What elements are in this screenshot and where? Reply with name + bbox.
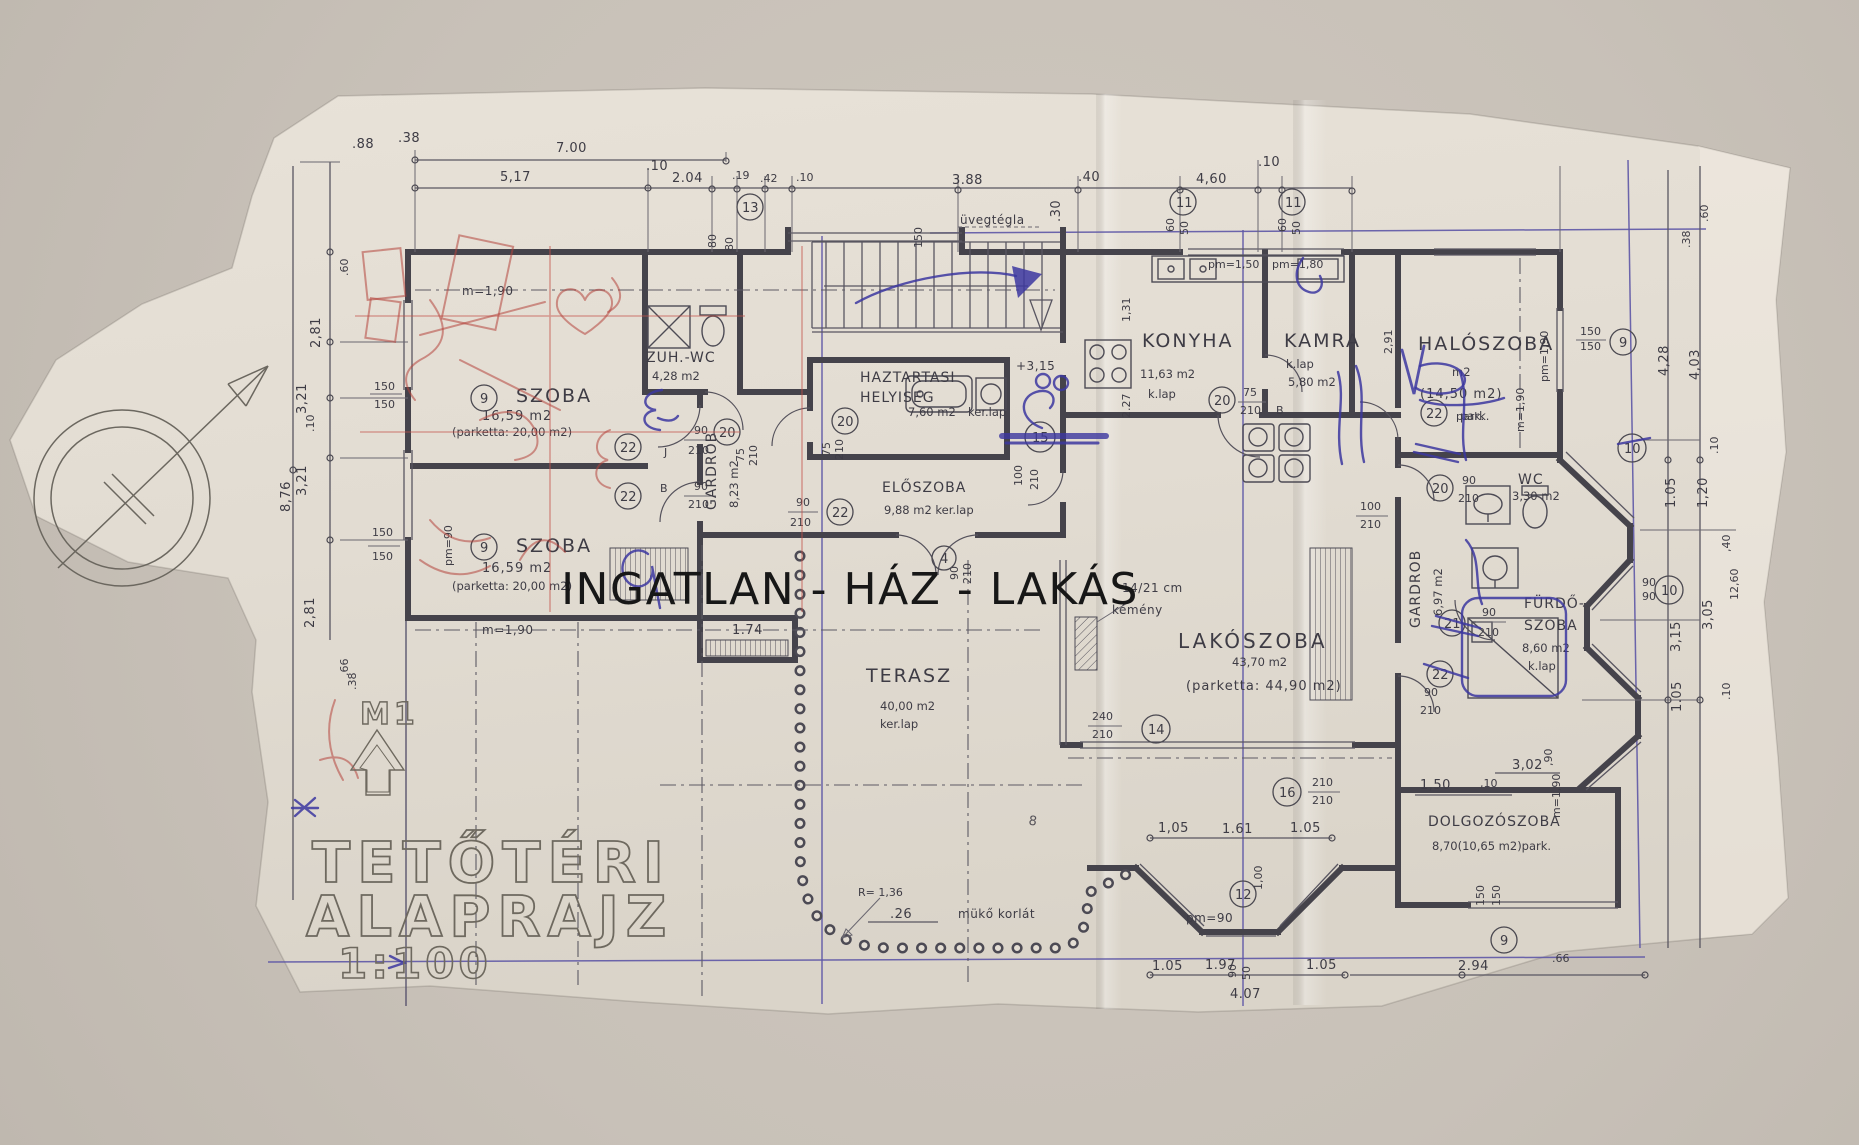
annotation-uvegtegla: üvegtégla [960,213,1025,227]
marker-value: 22 [620,441,637,456]
window-spec-value: 60 [1276,218,1289,232]
room-label-lakoszoba: LAKÓSZOBA [1178,629,1328,653]
dim: 3,05 [1701,599,1716,630]
window-spec-value: 150 [912,227,925,248]
room-area: 6,97 m2 [1431,568,1445,616]
marker-value: 12 [1235,888,1252,903]
annotation-m190: m=1,90 [1550,774,1563,818]
window-spec-value: 150 [372,550,393,563]
room-label-dolgozoszoba: DOLGOZÓSZOBA [1428,812,1561,830]
dim: 5,17 [500,170,531,185]
door-spec: 210 [1312,776,1333,789]
room-floor: (parketta: 44,90 m2) [1186,679,1342,694]
room-label-haztartasi: HAZTARTASI [860,370,956,386]
room-area: 7,60 m2 [908,405,956,419]
room-floor: (parketta: 20,00 m2) [452,579,572,593]
annotation-r26: .26 [890,907,912,922]
annotation-pm150: pm=1,50 [1208,258,1259,271]
dim: ,40 [1720,535,1733,553]
room-area: 40,00 m2 [880,699,935,713]
marker-value: 22 [1426,407,1443,422]
room-area: 3,30 m2 [1512,489,1560,503]
marker-value: 9 [1619,336,1627,351]
dim: 1.05 [1664,477,1679,508]
marker-value: 13 [742,201,759,216]
wardrobe-strip [706,640,788,656]
door-spec: 75 [820,442,833,456]
door-spec: 210 [1028,469,1041,490]
door-spec: 210 [1092,728,1113,741]
paper-fold-strip [1698,146,1790,938]
door-spec: 210 [1360,518,1381,531]
dim: 1,31 [1120,298,1133,323]
marker-value: 9 [1500,934,1508,949]
door-spec: 90 [1226,964,1239,978]
paper-crease [1096,94,1122,1009]
dim: .10 [646,159,668,174]
section-marker-label: M1 [360,697,419,732]
room-area: 11,63 m2 [1140,367,1195,381]
dim: .38 [1680,231,1693,249]
door-spec: 210 [1312,794,1333,807]
door-spec: 210 [833,439,846,460]
marker-value: 20 [837,415,854,430]
room-label-haztartasi2: HELYISEG [860,390,935,406]
annotation-radius: R= 1,36 [858,886,903,899]
dim: .38 [398,131,420,146]
dim: 1,05 [1158,821,1189,836]
dim: 1.74 [732,623,763,638]
door-spec: 100 [1012,465,1025,486]
dim: 2,91 [1382,330,1395,355]
window-spec-value: 50 [1178,221,1191,235]
door-spec: 210 [1240,404,1261,417]
dim: 2.04 [672,171,703,186]
dim: 3,15 [1669,621,1684,652]
dim: 2,81 [309,317,324,348]
dim: 80 [723,237,736,251]
door-letter: B [1276,404,1284,417]
marker-value: 14 [1148,723,1165,738]
floorplan-drawing: .88 .38 7.00 5,17 .10 2.04 .19 .42 .10 3… [0,0,1859,1145]
room-area: 4,28 m2 [652,369,700,383]
dim: 1.05 [1670,681,1685,712]
door-spec: 90 [1642,576,1656,589]
door-spec: 100 [1360,500,1381,513]
dim: 3,02 [1512,758,1543,773]
marker-value: 11 [1285,196,1302,211]
room-area: 16,59 m2 [482,409,552,424]
marker-value: 10 [1624,442,1641,457]
door-spec: 210 [1420,704,1441,717]
dim: 1.05 [1152,959,1183,974]
dim: 12,60 [1728,569,1741,601]
dim: 1.05 [1306,958,1337,973]
annotation-pm90: pm=90 [1186,911,1233,925]
dim: 3,21 [295,383,310,414]
dim: 3,21 [295,465,310,496]
window-spec-value: 150 [1490,885,1503,906]
room-area: k.lap [1286,357,1314,371]
window-spec-value: 150 [1474,885,1487,906]
door-spec: 210 [747,445,760,466]
room-label-szoba1: SZOBA [516,385,592,407]
dim: .30 [1049,200,1064,222]
dim: ,10 [1480,777,1498,790]
dim: .10 [1720,683,1733,701]
marker-value: 20 [719,426,736,441]
room-label-terasz: TERASZ [865,665,952,687]
paper-sheet [10,88,1790,1014]
door-letter: B [660,482,668,495]
window-spec-value: 50 [1290,221,1303,235]
marker-value: 16 [1279,786,1296,801]
window-spec-value: 150 [372,526,393,539]
marker-value: 11 [1176,196,1193,211]
room-area: 9,88 m2 ker.lap [884,503,974,517]
dim: .19 [732,169,750,182]
annotation-m190: m=1,90 [482,623,533,637]
dim: 4,03 [1688,349,1703,380]
dim: 2,81 [303,597,318,628]
room-area: 5,80 m2 [1288,375,1336,389]
room-label-wc: WC [1518,472,1544,488]
annotation-level: +3,15 [1016,359,1055,373]
door-spec: 50 [1240,966,1253,980]
window-spec-value: 60 [1164,218,1177,232]
scanned-floorplan-photo: .88 .38 7.00 5,17 .10 2.04 .19 .42 .10 3… [0,0,1859,1145]
room-area: 16,59 m2 [482,561,552,576]
dim: 1.61 [1222,822,1253,837]
door-spec: 90 [796,496,810,509]
door-spec: 90 [1482,606,1496,619]
door-spec: 90 [1424,686,1438,699]
dim: 1,50 [1420,778,1451,793]
dim: 80 [706,234,719,248]
dim: .38 [346,673,359,691]
dim: 1.05 [1290,821,1321,836]
dim: 4.07 [1230,987,1261,1002]
marker-value: 9 [480,392,488,407]
drawing-scale: 1:100 [338,939,492,988]
dim: .60 [1698,205,1711,223]
dim: ,90 [1542,749,1555,767]
room-label-gardrob1: GARDROB [704,432,720,510]
window-spec-value: 150 [1580,340,1601,353]
dim: 7.00 [556,141,587,156]
annotation-pm90: pm=90 [442,525,455,566]
marker-value: 10 [1661,584,1678,599]
room-label-gardrob2: GARDROB [1408,550,1424,628]
dim: .40 [1078,170,1100,185]
dim: 1,20 [1696,477,1711,508]
dim: .88 [352,137,374,152]
room-label-zuh-wc: ZUH.-WC [646,350,716,366]
annotation-railing: mükő korlát [958,907,1035,921]
room-floor: ker.lap [968,405,1006,419]
window-spec-value: 150 [374,380,395,393]
window-spec-value: 150 [374,398,395,411]
room-label-furdoszoba2: SZOBA [1524,618,1578,634]
dim: 4,28 [1657,345,1672,376]
marker-value: 22 [620,490,637,505]
dim: 3.88 [952,173,983,188]
dim: 8,76 [279,481,294,512]
room-label-haloszoba: HALÓSZOBA [1418,331,1554,355]
door-spec: 75 [734,448,747,462]
room-label-furdoszoba: FÜRDŐ- [1524,594,1585,612]
dim: .42 [760,172,778,185]
chimney [1075,617,1097,670]
room-floor: k.lap [1148,387,1176,401]
door-spec: 75 [1243,386,1257,399]
annotation-pm190: pm=1,90 [1538,331,1551,382]
door-spec: 240 [1092,710,1113,723]
door-spec: 210 [790,516,811,529]
dim: .10 [796,171,814,184]
dim: 2.27 [1120,394,1133,419]
room-area: 8,23 m2 [727,460,741,508]
window-spec-value: 150 [1580,325,1601,338]
room-label-szoba2: SZOBA [516,535,592,557]
wardrobe-strip [1310,548,1352,700]
watermark: INGATLAN - HÁZ - LAKÁS [561,562,1139,615]
room-floor: k.lap [1528,659,1556,673]
dim: .66 [1552,952,1570,965]
dim: 4,60 [1196,172,1227,187]
room-area: 43,70 m2 [1232,655,1287,669]
room-area: 8,70(10,65 m2)park. [1432,839,1551,853]
room-label-kamra: KAMRA [1284,330,1361,352]
room-label-konyha: KONYHA [1142,330,1233,352]
dim: .10 [304,415,317,433]
marker-value: 22 [832,506,849,521]
door-spec: 90 [1462,474,1476,487]
room-label-eloszoba: ELŐSZOBA [882,478,966,496]
door-letter: J [663,446,667,459]
door-spec: 90 [1642,590,1656,603]
dim: .10 [1258,155,1280,170]
dim: .10 [1708,437,1721,455]
room-area: 8,60 m2 [1522,641,1570,655]
annotation-m190: m=1,90 [1514,388,1527,432]
dim: .60 [338,259,351,277]
marker-value: 20 [1432,482,1449,497]
marker-value: 20 [1214,394,1231,409]
room-floor: ker.lap [880,717,918,731]
door-spec: 210 [1458,492,1479,505]
dim: 2.94 [1458,959,1489,974]
annotation-park: park. [1456,410,1484,423]
marker-value: 9 [480,541,488,556]
